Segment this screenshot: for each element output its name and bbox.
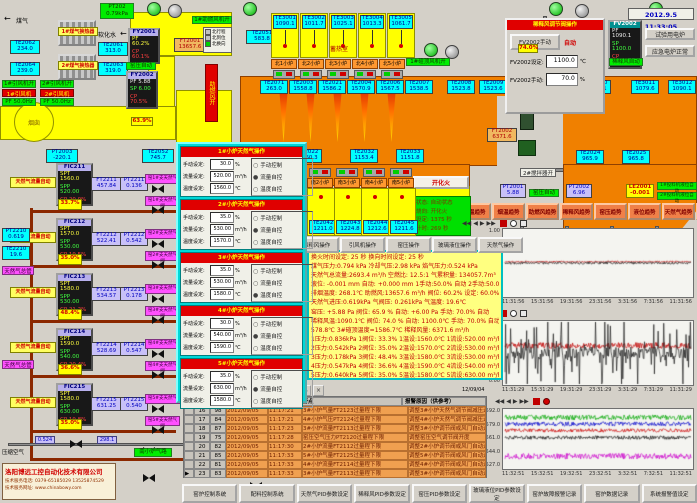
regenerator-cell: TE30011090.1	[271, 13, 299, 58]
branch-valve-label: 窑5#支天然气阀	[145, 416, 180, 426]
burner-indicator[interactable]	[354, 70, 376, 79]
alarm-row[interactable]: 22 81 2012/09/05 11:17:33 4#小炉流量FT2114过量…	[184, 460, 486, 469]
south-burner: 南3小炉 TE20431224.8	[334, 168, 360, 236]
unit-label: ℃	[235, 292, 241, 298]
info-line: 换火时间设定: 25 秒 换向时间设定: 25 秒	[311, 253, 499, 262]
radio-flow-auto[interactable]: ●流量自控	[253, 171, 311, 183]
burner-label: 北2小炉	[298, 59, 324, 69]
flow-set-label: 流量设定:	[183, 173, 209, 180]
trend-button[interactable]: 窑压趋势	[594, 203, 627, 220]
unit-label: %	[235, 215, 240, 221]
flame-icon	[277, 86, 290, 142]
thermocouple-dot	[312, 44, 316, 48]
ft2002-readout: FT20026371.6	[487, 128, 517, 142]
trend-button[interactable]: 天然气趋势	[662, 203, 695, 220]
burner-label: 南5小炉	[388, 178, 414, 188]
branch-valve-label: 窑3#支天然气阀	[145, 306, 180, 316]
south-regen-cell: TE20431224.8	[334, 188, 362, 236]
manual-set-label: 手动设定:	[183, 373, 209, 380]
valve-position: 36.6%	[58, 364, 82, 375]
burner-label: 北1小炉	[271, 59, 297, 69]
gas-flow-auto-label: 天然气流量自动	[10, 177, 56, 188]
unit-label: ℃	[235, 398, 241, 404]
gas-flow-auto-label: 天然气流量自动	[10, 397, 56, 408]
softwater-label: 软化水	[98, 30, 116, 39]
chart-nav-icon[interactable]: ▶	[513, 398, 518, 405]
light-fire-button[interactable]: 开化火	[413, 176, 469, 189]
radio-temp-auto[interactable]: ○温度自控	[253, 236, 311, 248]
x-tick: 7:31:56	[644, 299, 663, 305]
info-line: 578.8℃ 3#碹顶温度=1586.7℃ 稀释风量: 6371.6 m³/h	[311, 326, 499, 335]
chart-calendar-icon[interactable]	[520, 220, 527, 227]
burner-gas-section: 1#小炉天然气操作 手动设定: 30.0 % 流量设定: 520.00 m³/h…	[180, 146, 303, 197]
chart-nav-icon[interactable]: ◀	[506, 398, 511, 405]
thermocouple-dot	[399, 44, 403, 48]
burner-gas-section: 4#小炉天然气操作 手动设定: 30.0 % 流量设定: 540.00 m³/h…	[180, 305, 303, 356]
ft-readout: FT2214528.69	[91, 342, 122, 356]
x-tick: 11:31:56	[670, 299, 692, 305]
fan-icon	[243, 2, 257, 16]
flame-icon	[304, 86, 317, 142]
flow-set-label: 流量设定:	[183, 385, 209, 392]
branch-valve-label: 窑2#支天然气阀	[145, 251, 180, 261]
chart2-date: 12/09/04	[462, 387, 484, 393]
branch-valve-label: 窑4#支天然气阀	[145, 361, 180, 371]
chart1-xaxis: 11:31:5615:31:5619:31:5623:31:563:31:567…	[502, 299, 692, 305]
trend-button[interactable]: 助燃风趋势	[526, 203, 559, 220]
x-tick: 3:31:29	[618, 387, 637, 393]
branch-label: 窑1#支天然气	[145, 174, 180, 184]
thermocouple-dot	[400, 195, 404, 199]
burner-label: 北5小炉	[379, 59, 405, 69]
chimney-label: 烟囱	[28, 118, 40, 127]
x-tick: 23:31:29	[589, 387, 611, 393]
branch-valve-label: 窑1#支天然气阀	[145, 196, 180, 206]
regenerator-cell: TE30021011.7	[300, 13, 328, 58]
level-trend-chart	[502, 228, 694, 298]
radio-manual-control[interactable]: ○手动控制	[253, 159, 311, 171]
unit-label: m³/h	[235, 333, 247, 339]
temp-set-label: 温度设定:	[183, 238, 209, 245]
valve-position: 48.4%	[58, 309, 82, 320]
fire-status-line: 烧向: 开化火	[416, 208, 468, 217]
x-tick: 7:31:29	[644, 387, 663, 393]
gas-valve-icon[interactable]	[152, 316, 164, 325]
furnace-te-readout: TE20331151.8	[396, 149, 424, 163]
bottom-nav-button[interactable]: 系统报警值设定	[642, 484, 697, 503]
north-burner: 北3小炉	[325, 59, 351, 79]
burner-indicator[interactable]	[300, 70, 322, 79]
section-title: 1#小炉天然气操作	[181, 147, 302, 157]
pt2001-readout: PT20015.88	[500, 184, 526, 198]
flame-row	[277, 86, 398, 142]
fan-icon	[147, 2, 161, 16]
alarm-row[interactable]: 17 84 2012/09/05 11:17:21 4#小炉气压PT2124过量…	[184, 415, 486, 424]
chart-nav-icon[interactable]: ◀◀	[495, 398, 504, 405]
branch-label: 窑3#支天然气	[145, 284, 180, 294]
unit-label: ℃	[235, 345, 241, 351]
flow-set-label: 流量设定:	[183, 332, 209, 339]
gas-inlet-label: 煤气	[16, 16, 28, 25]
gas-flow-auto-label: 天然气流量自动	[10, 287, 56, 298]
id-fan1-freq: PF 50.0Hz	[2, 98, 36, 106]
furnace-te-readout: TE20071538.5	[405, 80, 433, 94]
y-tick: 1.00	[489, 228, 500, 234]
chart3-toolbar: ◀◀◀▶▶▶	[495, 398, 529, 405]
softwater-arrow-icon: ←	[120, 29, 127, 38]
ft-readout: FT2215631.25	[91, 397, 122, 411]
manual-set-label: 手动设定:	[183, 161, 209, 168]
north-regen-label: 蓄热室	[330, 44, 348, 53]
chart-nav-icon[interactable]: ◀	[473, 220, 478, 227]
thermocouple-dot	[346, 195, 350, 199]
x-tick: 3:32:51	[618, 471, 637, 477]
furnace-te-readout: TE30111079.6	[631, 80, 659, 94]
fire-status-line: 计时: 269 秒	[416, 225, 468, 234]
dilution-valve-position: 74.0%	[518, 44, 538, 53]
fan-icon	[445, 45, 459, 59]
operation-button[interactable]: 引风机操作	[340, 237, 385, 253]
compressed-air-label: 压缩空气	[2, 448, 24, 456]
radio-flow-auto[interactable]: ●流量自控	[253, 224, 311, 236]
radio-manual-control[interactable]: ○手动控制	[253, 212, 311, 224]
gas-branch-row: 天然气流量自动 FIC213SPT 1580.0SPP 530.00CP 21.…	[0, 273, 180, 328]
fy2001-controller: FY2001PF 60.2%CP 60.1%	[128, 28, 160, 64]
radio-manual-control[interactable]: ○手动控制	[253, 265, 311, 277]
legend-swatch	[205, 41, 211, 47]
pt-readout: PT22150.540	[120, 397, 148, 411]
x-tick: 19:31:56	[560, 299, 582, 305]
datetime-display: 2012.9.5 11:33:05	[628, 8, 694, 20]
manual-set-label: 手动设定:	[183, 267, 209, 274]
kiln-pressure-auto-label: 窑压自动	[126, 62, 156, 70]
fire-status-line: 状态: 自动状态	[416, 199, 468, 208]
burner-gas-section: 3#小炉天然气操作 手动设定: 35.0 % 流量设定: 530.00 m³/h…	[180, 252, 303, 303]
gas-valve-icon[interactable]	[152, 350, 164, 359]
close-icon[interactable]: ×	[313, 385, 324, 396]
radio-temp-auto[interactable]: ●温度自控	[253, 289, 311, 301]
bottom-nav-button[interactable]: 配料控制系统	[239, 484, 294, 503]
pt2002-readout: PT20026.96	[566, 184, 592, 198]
info-line: 天然气进压:0.619kPa 气阀压: 0.261kPa 气温度: 19.6℃	[311, 298, 499, 307]
chart-nav-icon[interactable]: ▶▶	[486, 220, 495, 227]
x-tick: 11:31:29	[670, 387, 692, 393]
manual-set-input[interactable]: 30.0	[210, 159, 234, 170]
furnace-te-readout: TE20091523.6	[479, 80, 507, 94]
fan-icon	[549, 2, 563, 16]
fv2002-set-input[interactable]: 1100.0	[546, 55, 578, 68]
alarm-row[interactable]: 18 87 2012/09/05 11:17:23 3#小炉流量FT2113过量…	[184, 424, 486, 433]
burner-indicator[interactable]	[390, 168, 412, 177]
operation-button[interactable]: 窑压操作	[386, 237, 431, 253]
alarm-row[interactable]: 20 82 2012/09/05 11:17:30 2#小炉流量FT2112过量…	[184, 442, 486, 451]
furnace-te-readout: TE30121090.1	[668, 80, 696, 94]
burner-indicator[interactable]	[327, 70, 349, 79]
chart-calendar-icon[interactable]	[520, 310, 527, 317]
thermocouple-line	[314, 30, 315, 44]
furnace-te-readout: TE20031558.8	[289, 80, 317, 94]
unit-label: %	[580, 77, 585, 83]
gas-valve-icon[interactable]	[152, 240, 164, 249]
bottom-buttons-row: 窑炉控制系统配料控制系统天然气PID参数设定稀释风PID参数设定窑压PID参数设…	[182, 484, 697, 503]
radio-flow-auto[interactable]: ○流量自控	[253, 277, 311, 289]
fan-icon	[424, 43, 438, 57]
x-tick: 11:32:51	[670, 471, 692, 477]
north-burner: 北4小炉	[352, 59, 378, 79]
temp-set-input[interactable]: 1580.0	[210, 395, 234, 406]
regenerator-cell: TE30041013.3	[358, 13, 386, 58]
burner-label: 北4小炉	[352, 59, 378, 69]
te2063-readout: TE2063319.0	[98, 62, 128, 76]
flow-set-input[interactable]: 530.00	[210, 277, 234, 288]
south-burner: 南4小炉 TE20441212.6	[361, 168, 387, 236]
air-temp-readout: 298.1	[97, 436, 117, 444]
chart-nav-icon[interactable]: ▶	[480, 220, 485, 227]
thermocouple-line	[401, 30, 402, 44]
info-line: 煤气压力:0.794 kPa 冷却气压:2.98 kPa 焰气压力:0.524 …	[311, 262, 499, 271]
id-fan2-status: 2#引风机开	[40, 80, 74, 88]
x-tick: 15:31:56	[531, 299, 553, 305]
x-tick: 11:31:56	[502, 299, 524, 305]
chart-nav-icon[interactable]: ▶▶	[519, 398, 528, 405]
furnace-te-readout: TE20211586.2	[318, 80, 346, 94]
manual-set-input[interactable]: 35.0	[210, 265, 234, 276]
flow-set-label: 流量设定:	[183, 279, 209, 286]
air-valve-icon[interactable]	[70, 440, 82, 449]
temp-set-label: 温度设定:	[183, 185, 209, 192]
manual-set-label: 手动设定:	[183, 320, 209, 327]
burner-label: 北3小炉	[325, 59, 351, 69]
bottom-nav-button[interactable]: 窑压PID参数设定	[412, 484, 467, 503]
bottom-nav-button[interactable]: 窑炉故障报警记录	[527, 484, 582, 503]
popup-title: 稀释风调节阀操作	[507, 20, 603, 30]
flame-icon	[358, 86, 371, 142]
fire-status-line: 设定: 1375 秒	[416, 216, 468, 225]
pt-readout: PT22110.136	[120, 177, 148, 191]
flue-damper-position: 63.9%	[131, 117, 153, 126]
flow-set-input[interactable]: 520.00	[210, 171, 234, 182]
fv2002-manual-input[interactable]: 70.0	[546, 73, 578, 86]
gas-main-label-2: 天然气总管	[2, 360, 34, 369]
fan-icon	[575, 4, 589, 18]
branch-label: 窑4#支天然气	[145, 339, 180, 349]
gas-valve-icon[interactable]	[152, 405, 164, 414]
radio-temp-auto[interactable]: ○温度自控	[253, 395, 311, 407]
manual-set-label: 手动设定:	[183, 214, 209, 221]
branch-valve-icon[interactable]	[143, 474, 155, 483]
thermocouple-dot	[373, 195, 377, 199]
limit-legend: 北行程 北到位 北换向	[203, 27, 232, 53]
trend-button[interactable]: 稀释风趋势	[560, 203, 593, 220]
x-tick: 11:32:51	[502, 471, 524, 477]
chart-flag-icon[interactable]	[533, 398, 540, 405]
trend-button[interactable]: 烟温趋势	[492, 203, 525, 220]
feeder1-auto-label: 1#投料机液位自动	[657, 182, 697, 190]
alarm-row[interactable]: 19 75 2012/09/05 11:17:28 窑压空气压力PT2120过量…	[184, 433, 486, 442]
operation-button[interactable]: 天然气操作	[478, 237, 523, 253]
north-burner: 北5小炉	[379, 59, 405, 79]
branch-label: 窑5#支天然气	[145, 394, 180, 404]
info-line: 排烟温度: 268.1℃ 助燃风:13657.6 m³/h 阀位: 60.2% …	[311, 289, 499, 298]
unit-label: m³/h	[235, 174, 247, 180]
unit-label: ℃	[580, 59, 586, 65]
gas-valve-icon[interactable]	[152, 206, 164, 215]
te2061-readout: TE2061313.0	[98, 42, 128, 56]
burner-indicator[interactable]	[381, 70, 403, 79]
company-web[interactable]: 技术服务网址: www.chinabowy.com	[5, 485, 113, 491]
gas-valve-icon[interactable]	[152, 185, 164, 194]
radio-temp-auto[interactable]: ○温度自控	[253, 183, 311, 195]
emergency-furnace-button[interactable]: 应急电炉正常	[645, 45, 695, 57]
trend-buttons-row: 窑温趋势烟温趋势助燃风趋势稀释风趋势窑压趋势液位趋势天然气趋势冷却气趋势	[458, 203, 697, 220]
x-tick: 15:31:29	[531, 387, 553, 393]
id-fan1-status: 1#引风机开	[2, 80, 36, 88]
bottom-nav-button[interactable]: 玻璃液位PID参数设定	[469, 484, 524, 503]
temp-set-input[interactable]: 1590.0	[210, 342, 234, 353]
flow-set-input[interactable]: 630.00	[210, 383, 234, 394]
vault-fan-status: 1#碹顶风机开	[406, 58, 450, 66]
manual-set-input[interactable]: 35.0	[210, 371, 234, 382]
bottom-nav-button[interactable]: 稀释风PID参数设定	[354, 484, 409, 503]
chart-zoom-icon[interactable]	[510, 220, 517, 227]
x-tick: 23:32:51	[589, 471, 611, 477]
info-line: 窑压: +5.88 Pa 阀位: 65.9 % 自动: +6.00 Pa 手动:…	[311, 308, 499, 317]
thermocouple-line	[285, 30, 286, 44]
radio-flow-auto[interactable]: ●流量自控	[253, 330, 311, 342]
bottom-nav-button[interactable]: 天然气PID参数设定	[297, 484, 352, 503]
temp-set-label: 温度设定:	[183, 291, 209, 298]
bottom-nav-button[interactable]: 窑炉控制系统	[182, 484, 237, 503]
burner-indicator[interactable]	[336, 168, 358, 177]
valve-position: 35.0%	[58, 419, 82, 430]
furnace-te-readout: TE2025965.8	[622, 150, 650, 164]
te2062-readout: TE2062234.0	[10, 40, 40, 54]
flame-icon	[331, 86, 344, 142]
alarm-row[interactable]: 21 85 2012/09/05 11:17:33 5#小炉气量FT2125过量…	[184, 451, 486, 460]
chart3-xaxis: 11:32:5115:32:5119:32:5123:32:513:32:517…	[502, 471, 692, 477]
gas-main-label-1: 天然气总管	[2, 266, 34, 275]
company-tel: 技术服务电话: 0379-65185029 13525874529	[5, 478, 113, 484]
manual-set-input[interactable]: 35.0	[210, 212, 234, 223]
radio-manual-control[interactable]: ○手动控制	[253, 318, 311, 330]
unit-label: %	[235, 374, 240, 380]
south-regen-cell: TE20441212.6	[361, 188, 389, 236]
gas-branch-row: 天然气流量自动 FIC211SPT 1560.0SPP 520.00CP 20.…	[0, 163, 180, 218]
info-line: 4压力:0.547kPa 4阀位: 36.6% 4温设:1590.0℃ 4流设:…	[311, 362, 499, 371]
temp-set-input[interactable]: 1570.0	[210, 236, 234, 247]
chart-nav-icon[interactable]: ◀◀	[462, 220, 471, 227]
pt2003-readout: PT2003-220.1	[46, 149, 78, 163]
section-title: 2#小炉天然气操作	[181, 200, 302, 210]
chart-stop-icon[interactable]	[543, 398, 550, 405]
gas-valve-icon[interactable]	[152, 295, 164, 304]
burner-gas-section: 5#小炉天然气操作 手动设定: 35.0 % 流量设定: 630.00 m³/h…	[180, 358, 303, 409]
pt-readout: PT22130.178	[120, 287, 148, 301]
fv2002-manual-label: FV2002手动:	[510, 76, 544, 84]
south-regen-cell: TE20451211.6	[388, 188, 416, 236]
burner-indicator[interactable]	[273, 70, 295, 79]
process-info-panel: 换火时间设定: 25 秒 换向时间设定: 25 秒煤气压力:0.794 kPa …	[307, 250, 503, 380]
id-fan1-label: 1#引风机	[2, 89, 36, 97]
combustion-fan-status: 1#助燃风机开	[192, 16, 232, 24]
gas-main-pressure: PT22100.619	[2, 228, 30, 242]
operation-button[interactable]: 玻璃液位操作	[432, 237, 477, 253]
trend-button[interactable]: 液位趋势	[628, 203, 661, 220]
radio-manual-control[interactable]: ○手动控制	[253, 371, 311, 383]
stirrer-machine	[518, 140, 536, 156]
id-fan2-freq: PF 50.0Hz	[40, 98, 74, 106]
regenerator-cell: TE30051061.7	[387, 13, 415, 58]
unit-label: ℃	[235, 239, 241, 245]
unit-label: m³/h	[235, 280, 247, 286]
branch-label: 窑2#支天然气	[145, 229, 180, 239]
section-title: 3#小炉天然气操作	[181, 253, 302, 263]
pt-readout: PT22140.547	[120, 342, 148, 356]
chart-zoom-icon[interactable]	[510, 310, 517, 317]
manual-set-input[interactable]: 30.0	[210, 318, 234, 329]
alarm-row[interactable]: ▶ 23 83 2012/09/05 11:17:33 3#小炉气量FT2113…	[184, 469, 486, 478]
x-tick: 15:32:51	[531, 471, 553, 477]
fy2002-controller: FY2002PF 5.88SP 6.00CP 70.5%	[126, 71, 158, 109]
gas-valve-icon[interactable]	[152, 371, 164, 380]
gas-branch-row: 天然气流量自动 FIC215SPT 1580.0SPP 630.00CP 19.…	[0, 383, 180, 438]
gas-valve-icon[interactable]	[152, 426, 164, 435]
furnace-te-readout: TE2024965.9	[576, 150, 604, 164]
chart2-xaxis: 11:31:2915:31:2919:31:2923:31:293:31:297…	[502, 387, 692, 393]
ft-readout: FT2213534.57	[91, 287, 122, 301]
dilution-auto-label: 稀释风自动	[609, 58, 643, 66]
gas-flow-auto-label: 天然气流量自动	[10, 342, 56, 353]
le2001-readout: LE2001-0.001	[626, 184, 654, 198]
burner-label: 南3小炉	[334, 178, 360, 188]
section-title: 4#小炉天然气操作	[181, 306, 302, 316]
x-tick: 11:31:29	[502, 387, 524, 393]
te2052-readout: TE2052745.7	[142, 149, 174, 163]
flow-set-input[interactable]: 540.00	[210, 330, 234, 341]
chart-flag-icon[interactable]	[500, 220, 507, 227]
thermocouple-dot	[283, 44, 287, 48]
info-line: 天然气总流量:2693.4 m³/h 空燃比: 12.5:1 气累积量: 134…	[311, 271, 499, 280]
gas-valve-icon[interactable]	[152, 261, 164, 270]
test-furnace-button[interactable]: 试验用电炉	[645, 28, 695, 40]
temp-set-input[interactable]: 1560.0	[210, 183, 234, 194]
valve-position: 35.0%	[58, 254, 82, 265]
feeder2-auto-label: 2#投料机液位自动	[657, 192, 697, 200]
dilution-valve-popup: 稀释风调节阀操作 FV2002手动 自动 FV2002设定: 1100.0 ℃ …	[505, 18, 605, 114]
te2064-readout: TE2064239.0	[10, 62, 40, 76]
radio-temp-auto[interactable]: ○温度自控	[253, 342, 311, 354]
info-line: 2压力:0.542kPa 2阀位: 35.0% 2温设:1570.0℃ 2流设:…	[311, 344, 499, 353]
burner-gas-section: 2#小炉天然气操作 手动设定: 35.0 % 流量设定: 530.00 m³/h…	[180, 199, 303, 250]
gas-exchanger-1-label: 1#煤气换热器	[58, 27, 98, 36]
thermocouple-dot	[319, 195, 323, 199]
unit-label: m³/h	[235, 227, 247, 233]
north-burner: 北2小炉	[298, 59, 324, 79]
flow-set-input[interactable]: 530.00	[210, 224, 234, 235]
kiln-pressure-auto: 窑压自动	[529, 189, 559, 197]
furnace-te-readout: TE20041570.9	[347, 80, 375, 94]
fv2002-set-label: FV2002设定:	[510, 58, 544, 66]
temp-set-input[interactable]: 1580.0	[210, 289, 234, 300]
radio-flow-auto[interactable]: ●流量自控	[253, 383, 311, 395]
temp-set-label: 温度设定:	[183, 397, 209, 404]
bottom-nav-button[interactable]: 窑炉数据记录	[584, 484, 639, 503]
thermocouple-dot	[370, 44, 374, 48]
burner-indicator[interactable]	[363, 168, 385, 177]
stirrer2-status: 2#搅拌器开	[520, 168, 556, 177]
x-tick: 3:31:56	[618, 299, 637, 305]
north-burner: 北1小炉	[271, 59, 297, 79]
